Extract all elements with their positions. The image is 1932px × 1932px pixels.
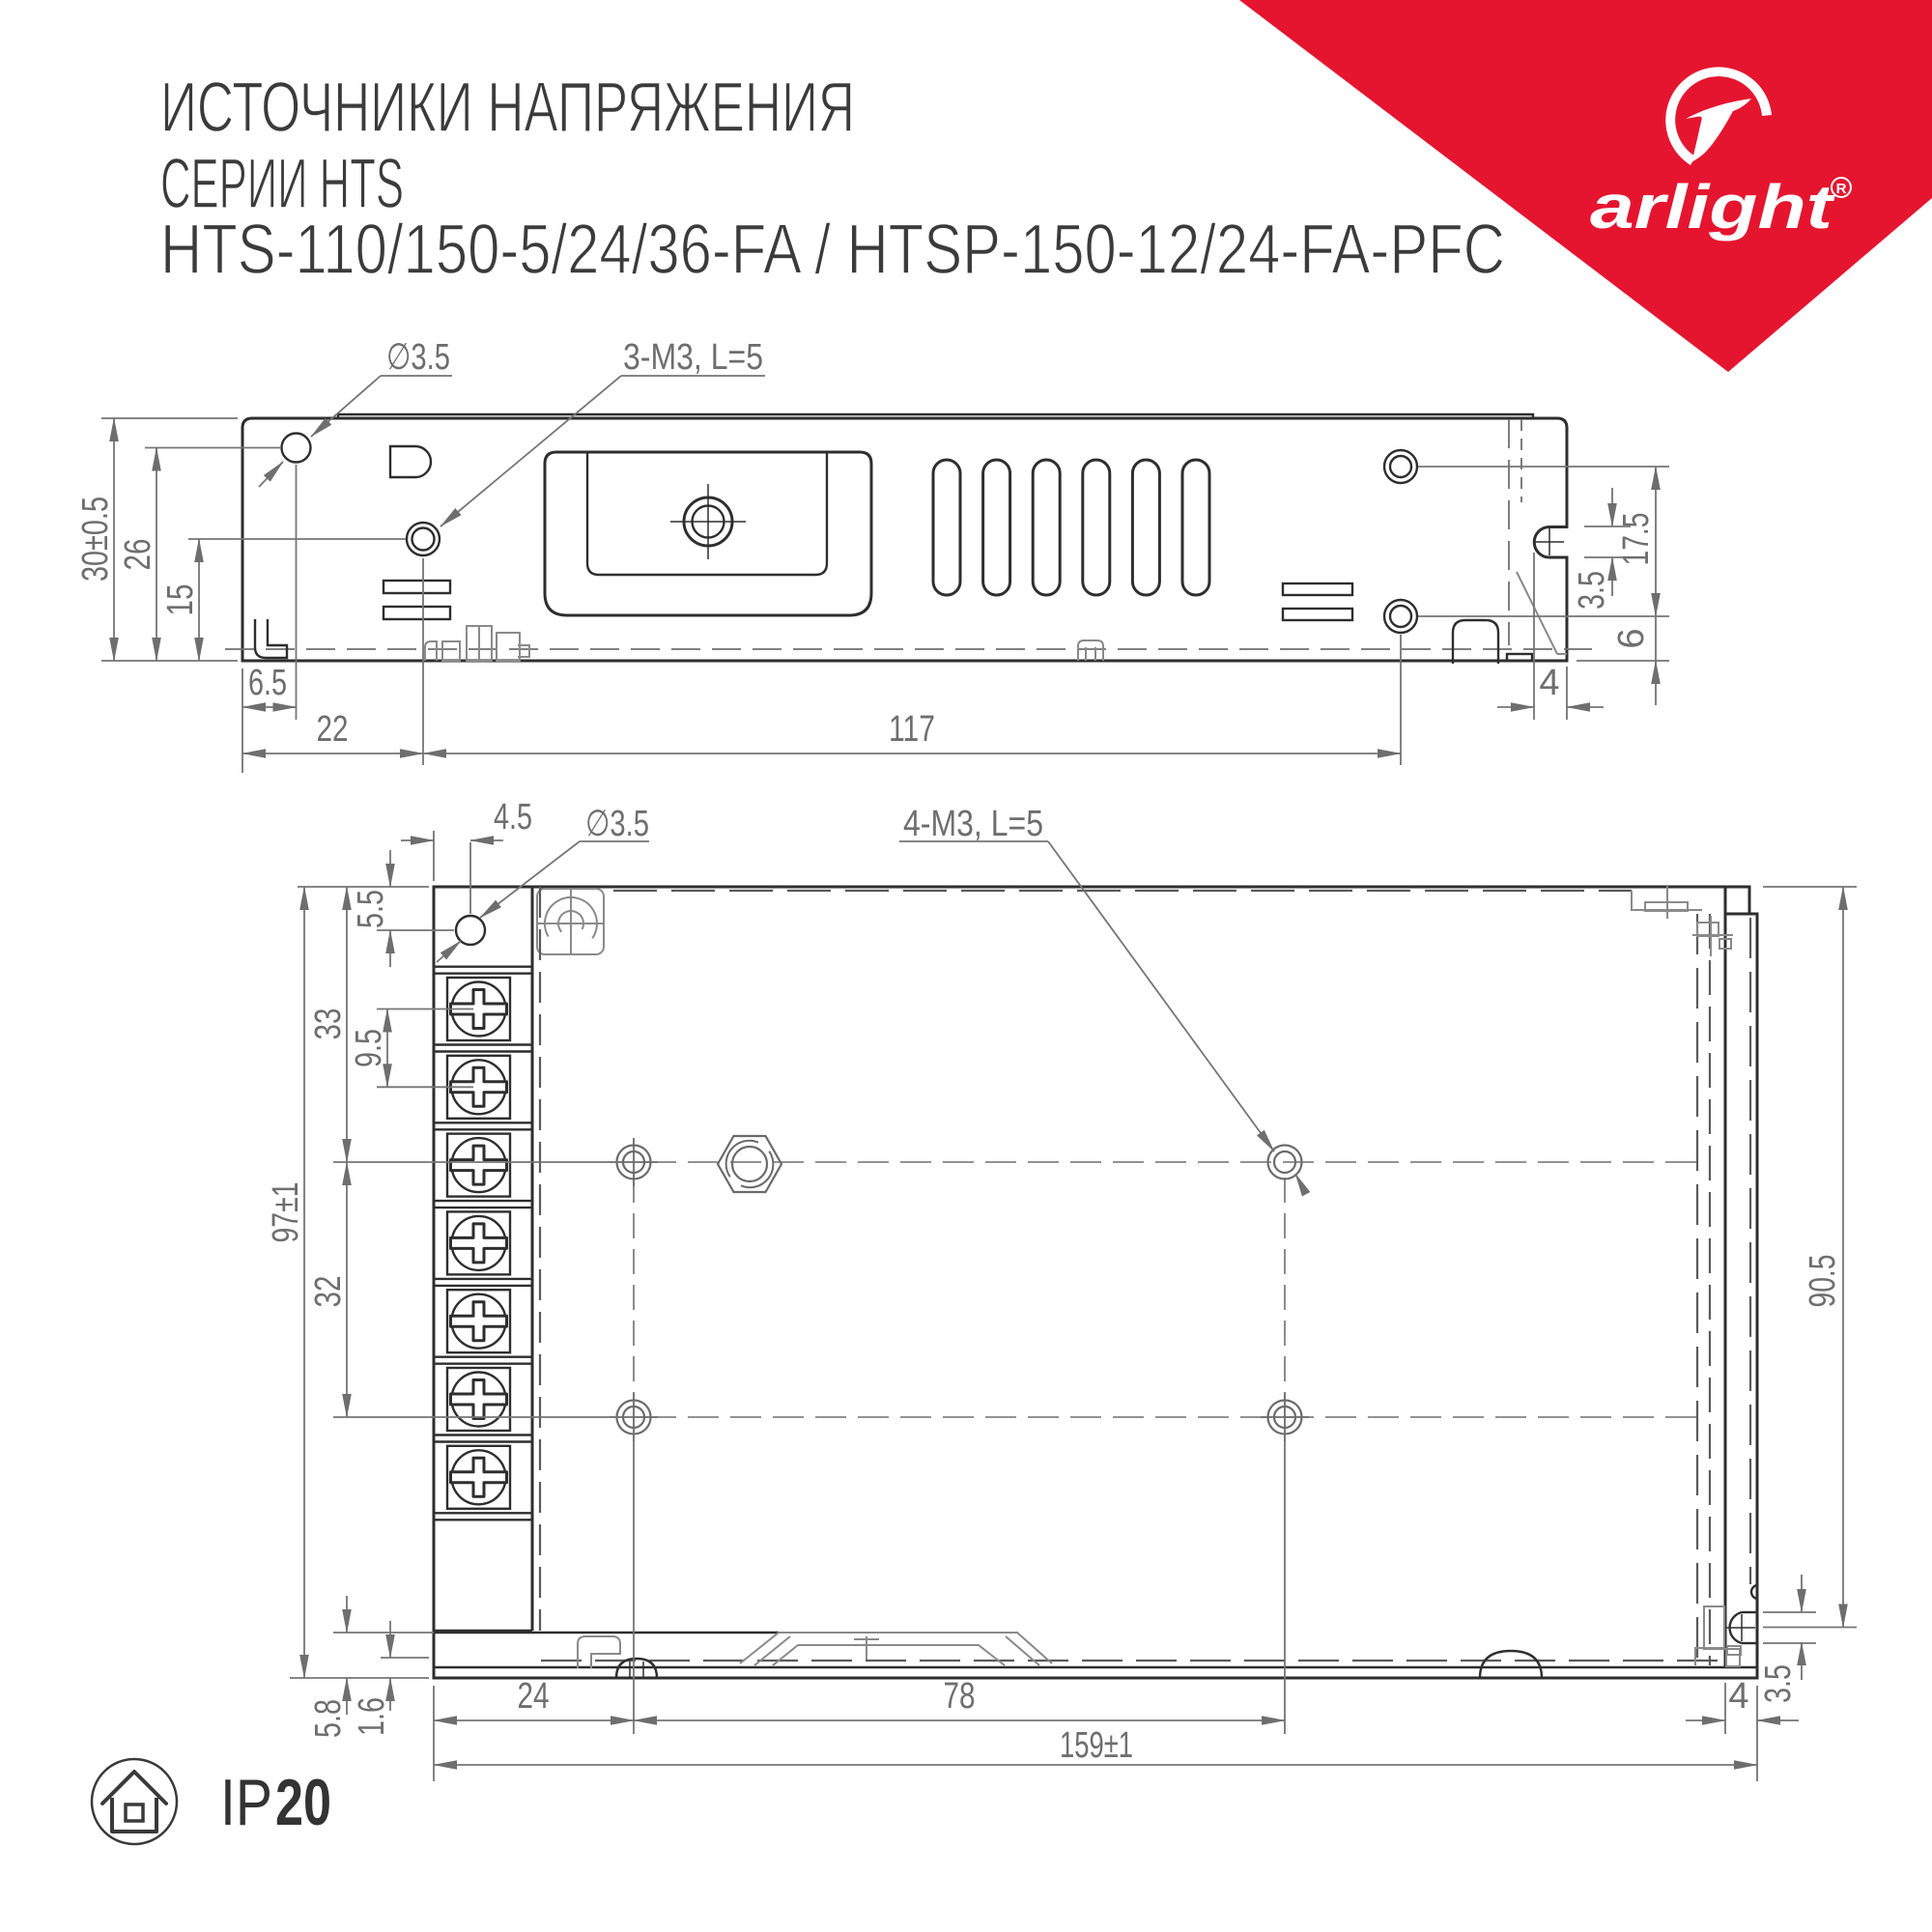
svg-text:6: 6 [1611, 628, 1652, 648]
svg-text:33: 33 [308, 1009, 349, 1040]
svg-text:3-M3, L=5: 3-M3, L=5 [623, 337, 763, 378]
svg-text:4.5: 4.5 [494, 797, 532, 838]
svg-text:arlight: arlight [1590, 172, 1835, 241]
svg-text:5.5: 5.5 [351, 890, 391, 928]
svg-text:ИСТОЧНИКИ НАПРЯЖЕНИЯ: ИСТОЧНИКИ НАПРЯЖЕНИЯ [160, 69, 855, 147]
svg-text:R: R [1836, 181, 1847, 197]
svg-text:24: 24 [518, 1676, 550, 1717]
svg-text:9.5: 9.5 [349, 1029, 389, 1067]
svg-text:78: 78 [944, 1676, 976, 1717]
svg-text:32: 32 [308, 1276, 349, 1308]
svg-text:4: 4 [1539, 663, 1559, 703]
svg-text:30±0.5: 30±0.5 [75, 497, 116, 582]
svg-text:97±1: 97±1 [266, 1182, 306, 1243]
svg-text:20: 20 [275, 1766, 331, 1839]
svg-text:4-M3, L=5: 4-M3, L=5 [903, 804, 1043, 844]
svg-text:1.6: 1.6 [352, 1697, 392, 1736]
svg-text:IP: IP [220, 1766, 272, 1839]
svg-text:3.5: 3.5 [1758, 1664, 1799, 1703]
svg-text:∅3.5: ∅3.5 [386, 337, 450, 378]
svg-text:22: 22 [317, 709, 349, 750]
svg-text:90.5: 90.5 [1803, 1255, 1843, 1308]
svg-text:159±1: 159±1 [1060, 1725, 1133, 1766]
svg-text:3.5: 3.5 [1572, 571, 1612, 610]
svg-text:5.8: 5.8 [308, 1699, 349, 1738]
svg-text:26: 26 [118, 539, 158, 571]
svg-text:HTS-110/150-5/24/36-FA / HTSP-: HTS-110/150-5/24/36-FA / HTSP-150-12/24-… [160, 211, 1505, 289]
svg-text:4: 4 [1728, 1676, 1748, 1717]
svg-text:6.5: 6.5 [248, 663, 287, 703]
svg-text:15: 15 [160, 584, 201, 616]
svg-text:∅3.5: ∅3.5 [585, 804, 649, 844]
svg-text:17.5: 17.5 [1616, 513, 1657, 566]
svg-text:117: 117 [889, 709, 935, 750]
